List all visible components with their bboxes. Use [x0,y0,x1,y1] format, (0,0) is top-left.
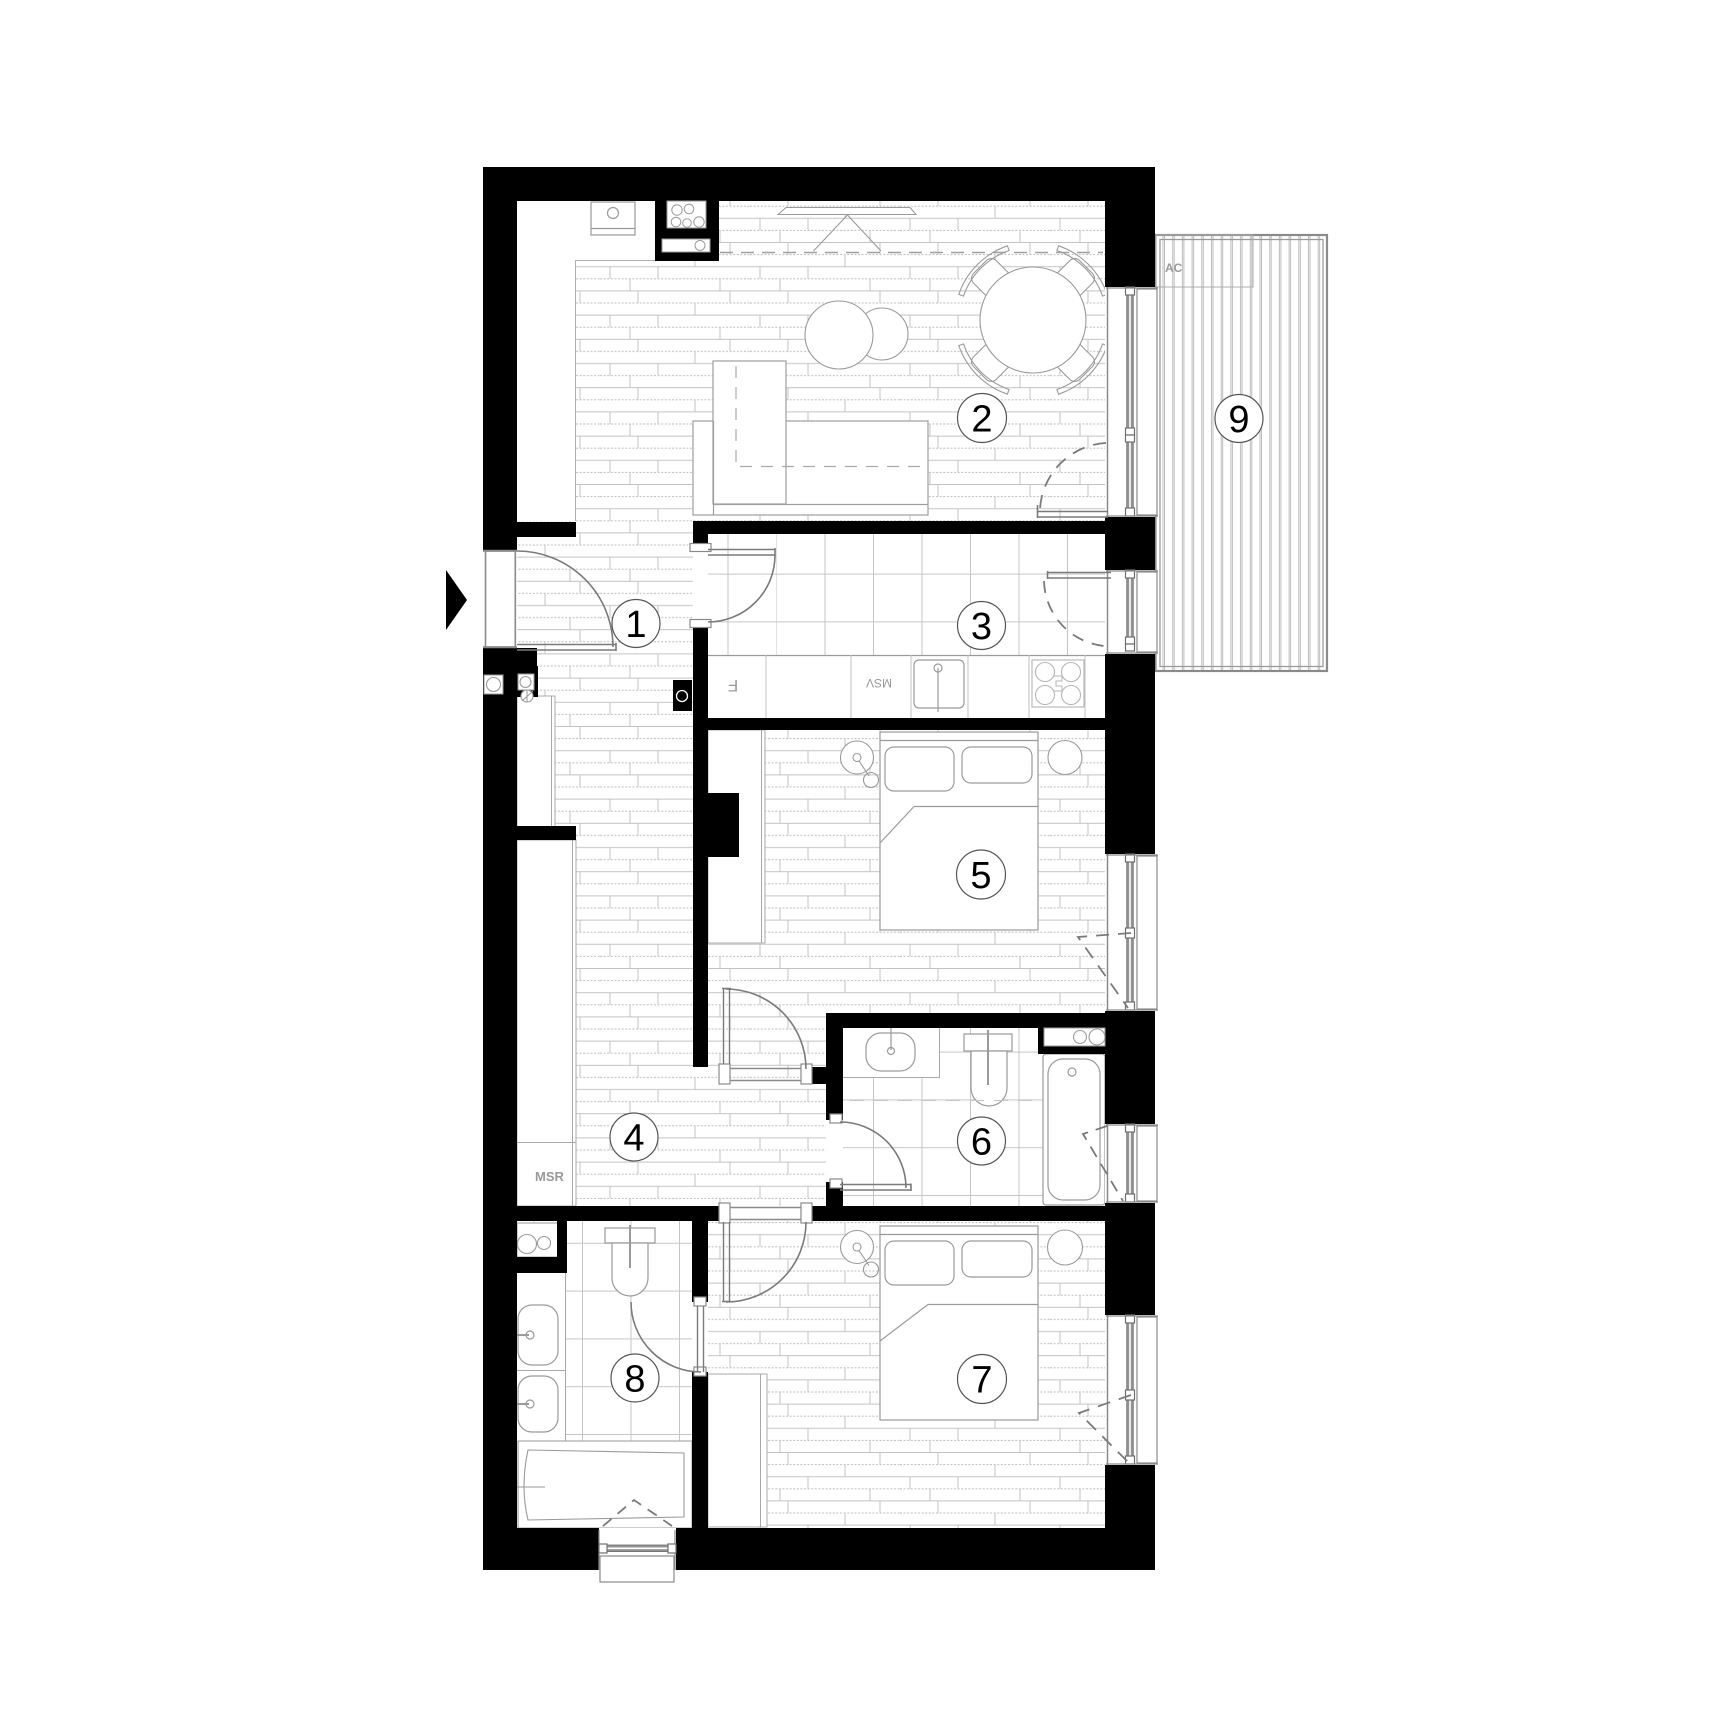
svg-text:8: 8 [624,1359,645,1401]
svg-text:9: 9 [1228,399,1249,441]
svg-text:3: 3 [971,606,992,648]
svg-text:5: 5 [970,855,991,897]
svg-text:7: 7 [971,1360,992,1402]
svg-text:4: 4 [623,1118,644,1160]
svg-text:AC: AC [1165,261,1183,275]
svg-text:MSV: MSV [866,676,892,690]
svg-text:2: 2 [971,399,992,441]
svg-text:6: 6 [971,1122,992,1164]
svg-text:MSR: MSR [535,1169,565,1184]
svg-text:1: 1 [625,604,646,646]
svg-text:F: F [728,676,738,695]
